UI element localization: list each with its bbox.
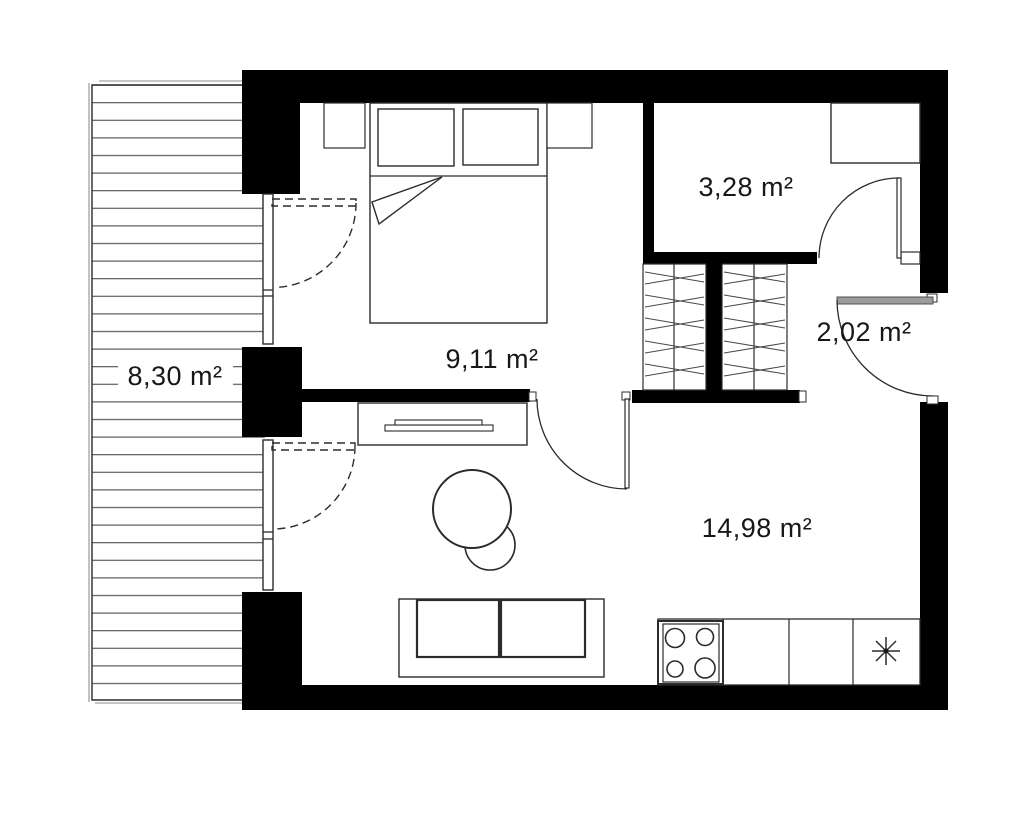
balcony-label-group: 8,30 m² (118, 358, 233, 391)
bedroom-door-jamb-left (529, 392, 536, 401)
balcony-deck-lines (92, 85, 265, 700)
burner (666, 629, 685, 648)
tv-screen (395, 420, 482, 425)
bedroom-door (529, 392, 630, 489)
bathroom-door-jamb (901, 252, 920, 264)
bedroom-window (263, 194, 273, 344)
living-window (263, 440, 273, 590)
bedroom-balcony-door-arc (276, 203, 357, 288)
exterior-wall-right-lower (920, 402, 948, 710)
living-balcony-door-arc (276, 446, 356, 529)
burner (695, 658, 715, 678)
tv-base (385, 425, 493, 431)
living-balcony-door-leaf (272, 443, 355, 450)
floor-plan-canvas: 9,11 m² 3,28 m² (0, 0, 1024, 822)
wardrobes (643, 264, 806, 402)
bedroom-bathroom-wall (643, 103, 654, 252)
entrance-door-leaf (837, 297, 933, 304)
sink-center-dot (884, 649, 889, 654)
living-kitchen: 14,98 m² (272, 403, 920, 685)
bedroom-area-label: 9,11 m² (445, 344, 538, 374)
exterior-wall-top (242, 70, 948, 103)
nightstand-left (324, 103, 365, 148)
bathroom-door-leaf (897, 178, 901, 258)
entrance-door-arc (837, 300, 933, 396)
bedroom-door-arc (537, 399, 627, 489)
left-wall-pier-top (242, 70, 300, 194)
bathroom-area-label: 3,28 m² (698, 172, 793, 202)
wardrobe-bottom-wall (632, 390, 800, 403)
washing-machine (831, 103, 920, 163)
bedroom: 9,11 m² (272, 103, 592, 374)
pillow-left (378, 109, 454, 166)
exterior-wall-right-upper (920, 70, 948, 293)
burner (667, 661, 683, 677)
bedroom-living-wall (302, 389, 530, 402)
left-wall-pier-middle (242, 347, 302, 437)
hallway: 2,02 m² (816, 294, 938, 404)
left-wall-pier-bottom (242, 592, 302, 710)
entrance-door-jamb-bottom (927, 396, 938, 404)
hallway-area-label: 2,02 m² (816, 317, 911, 347)
bathroom-door-arc (819, 178, 899, 258)
burner (697, 629, 714, 646)
nightstand-right (547, 103, 592, 148)
bedroom-balcony-door-leaf (272, 199, 356, 206)
sofa-cushion-left (417, 600, 499, 657)
balcony-area-label: 8,30 m² (127, 361, 222, 391)
bedroom-door-leaf (625, 399, 629, 488)
pillow-right (463, 109, 538, 165)
stove-icon (658, 621, 723, 684)
sofa-cushion-right (501, 600, 585, 657)
exterior-wall-bottom (302, 685, 948, 710)
sink-icon (872, 637, 900, 665)
living-area-label: 14,98 m² (702, 513, 813, 543)
wardrobe-wall-end-jamb (799, 391, 806, 402)
round-table (433, 470, 511, 548)
wardrobe-divider-wall (706, 264, 722, 390)
bathroom: 3,28 m² (698, 103, 920, 264)
bathroom-bottom-wall (643, 252, 817, 264)
